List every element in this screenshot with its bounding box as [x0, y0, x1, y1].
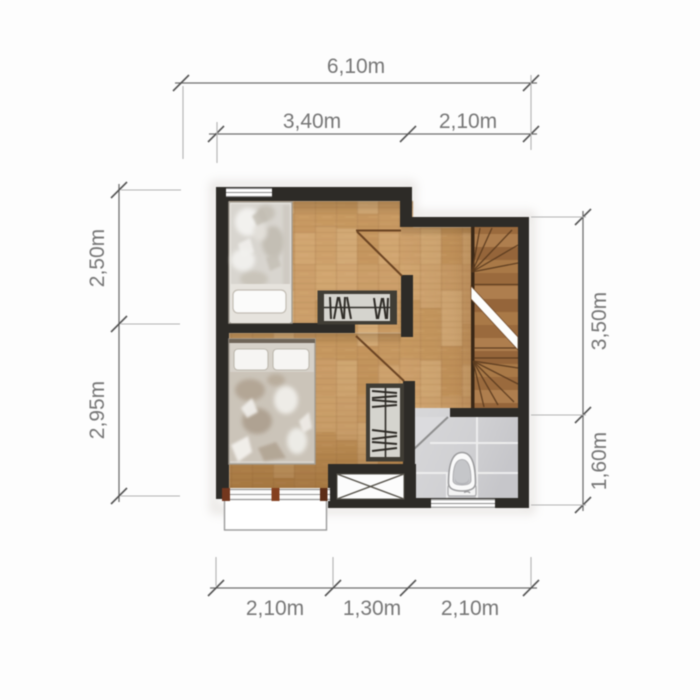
svg-text:2,10m: 2,10m [441, 597, 499, 620]
svg-text:3,50m: 3,50m [588, 292, 611, 350]
svg-text:2,50m: 2,50m [86, 229, 109, 287]
svg-text:1,30m: 1,30m [343, 597, 401, 620]
svg-text:3,40m: 3,40m [283, 110, 341, 133]
svg-text:2,10m: 2,10m [246, 597, 304, 620]
svg-text:1,60m: 1,60m [588, 432, 611, 490]
svg-text:6,10m: 6,10m [327, 55, 385, 78]
svg-text:2,10m: 2,10m [439, 110, 497, 133]
svg-text:2,95m: 2,95m [86, 381, 109, 439]
